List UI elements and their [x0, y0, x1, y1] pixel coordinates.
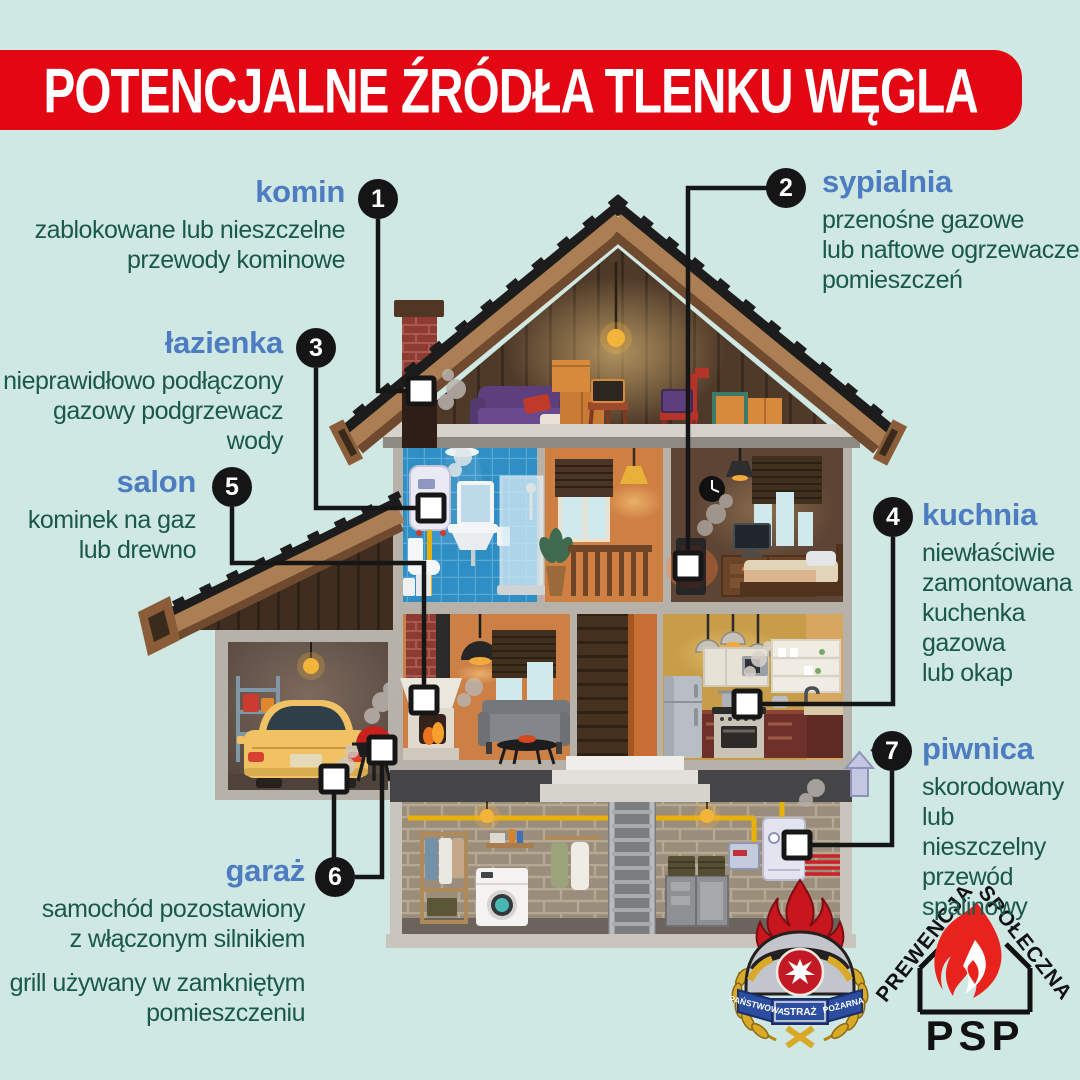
callout-salon-desc: kominek na gaz lub drewno	[28, 505, 196, 565]
washing-machine	[476, 868, 528, 926]
callout-lazienka-heading: łazienka	[0, 325, 283, 361]
old-sofa	[470, 386, 574, 430]
badge-1: 1	[358, 179, 398, 219]
kitchen	[663, 614, 843, 760]
callout-komin: komin zablokowane lub nieszczelne przewo…	[35, 174, 345, 275]
callout-kuchnia: kuchnia niewłaściwie zamontowana kuchenk…	[922, 497, 1072, 688]
shower-cabin	[497, 477, 546, 595]
page-title: POTENCJALNE ŹRÓDŁA TLENKU WĘGLA	[44, 54, 978, 127]
callout-sypialnia: sypialnia przenośne gazowe lub naftowe o…	[822, 164, 1079, 295]
mirror	[459, 483, 492, 524]
callout-garaz-desc: samochód pozostawiony z włączonym silnik…	[10, 894, 305, 954]
callout-kuchnia-heading: kuchnia	[922, 497, 1072, 533]
light-bulb	[607, 329, 625, 347]
fireplace-chimney	[406, 614, 436, 680]
landing-room	[536, 448, 663, 602]
crest-banner-mid: STRAŻ	[783, 1005, 816, 1018]
badge-7: 7	[872, 731, 912, 771]
source-marker-bedroom-heater	[675, 553, 701, 579]
badge-2: 2	[766, 168, 806, 208]
callout-komin-heading: komin	[35, 174, 345, 210]
source-marker-car	[321, 766, 347, 792]
title-banner: POTENCJALNE ŹRÓDŁA TLENKU WĘGLA	[0, 50, 1022, 130]
callout-garaz-desc2: grill używany w zamkniętym pomieszczeniu	[10, 968, 305, 1028]
metal-cabinet	[666, 876, 728, 926]
source-marker-fireplace	[411, 687, 437, 713]
gas-meter	[729, 843, 759, 869]
window	[555, 459, 613, 542]
light-bulb	[303, 658, 319, 674]
prevention-psp-label: PSP	[925, 1012, 1024, 1059]
fridge	[664, 676, 702, 758]
source-marker-water-heater	[418, 495, 444, 521]
source-marker-chimney	[408, 378, 434, 404]
callout-lazienka-desc: nieprawidłowo podłączony gazowy podgrzew…	[0, 366, 283, 456]
callout-piwnica-desc: skorodowany lub nieszczelny przewód spal…	[922, 772, 1080, 922]
badge-6: 6	[315, 857, 355, 897]
callout-piwnica: piwnica skorodowany lub nieszczelny prze…	[922, 731, 1080, 922]
paint-can	[243, 694, 259, 712]
infographic-poster: PAŃSTWOWA STRAŻ POŻARNA PREWENCJA SPOŁEC…	[0, 0, 1080, 1080]
callout-garaz-heading: garaż	[10, 853, 305, 889]
badge-3: 3	[296, 328, 336, 368]
callout-piwnica-heading: piwnica	[922, 731, 1080, 767]
callout-sypialnia-desc: przenośne gazowe lub naftowe ogrzewacze …	[822, 205, 1079, 295]
callout-salon-heading: salon	[28, 464, 196, 500]
source-marker-boiler	[784, 832, 810, 858]
ladder	[608, 800, 656, 934]
badge-4: 4	[873, 497, 913, 537]
staircase	[577, 614, 628, 760]
source-marker-stove	[734, 691, 760, 717]
callout-salon: salon kominek na gaz lub drewno	[28, 464, 196, 565]
source-marker-grill	[369, 737, 395, 763]
callout-lazienka: łazienka nieprawidłowo podłączony gazowy…	[0, 325, 283, 456]
bin	[403, 578, 415, 596]
tv	[592, 380, 624, 402]
callout-komin-desc: zablokowane lub nieszczelne przewody kom…	[35, 215, 345, 275]
callout-sypialnia-heading: sypialnia	[822, 164, 1079, 200]
callout-kuchnia-desc: niewłaściwie zamontowana kuchenka gazowa…	[922, 538, 1072, 688]
callout-garaz: garaż samochód pozostawiony z włączonym …	[10, 853, 305, 1028]
open-shelf	[772, 640, 840, 692]
badge-5: 5	[212, 467, 252, 507]
sink	[448, 524, 498, 533]
